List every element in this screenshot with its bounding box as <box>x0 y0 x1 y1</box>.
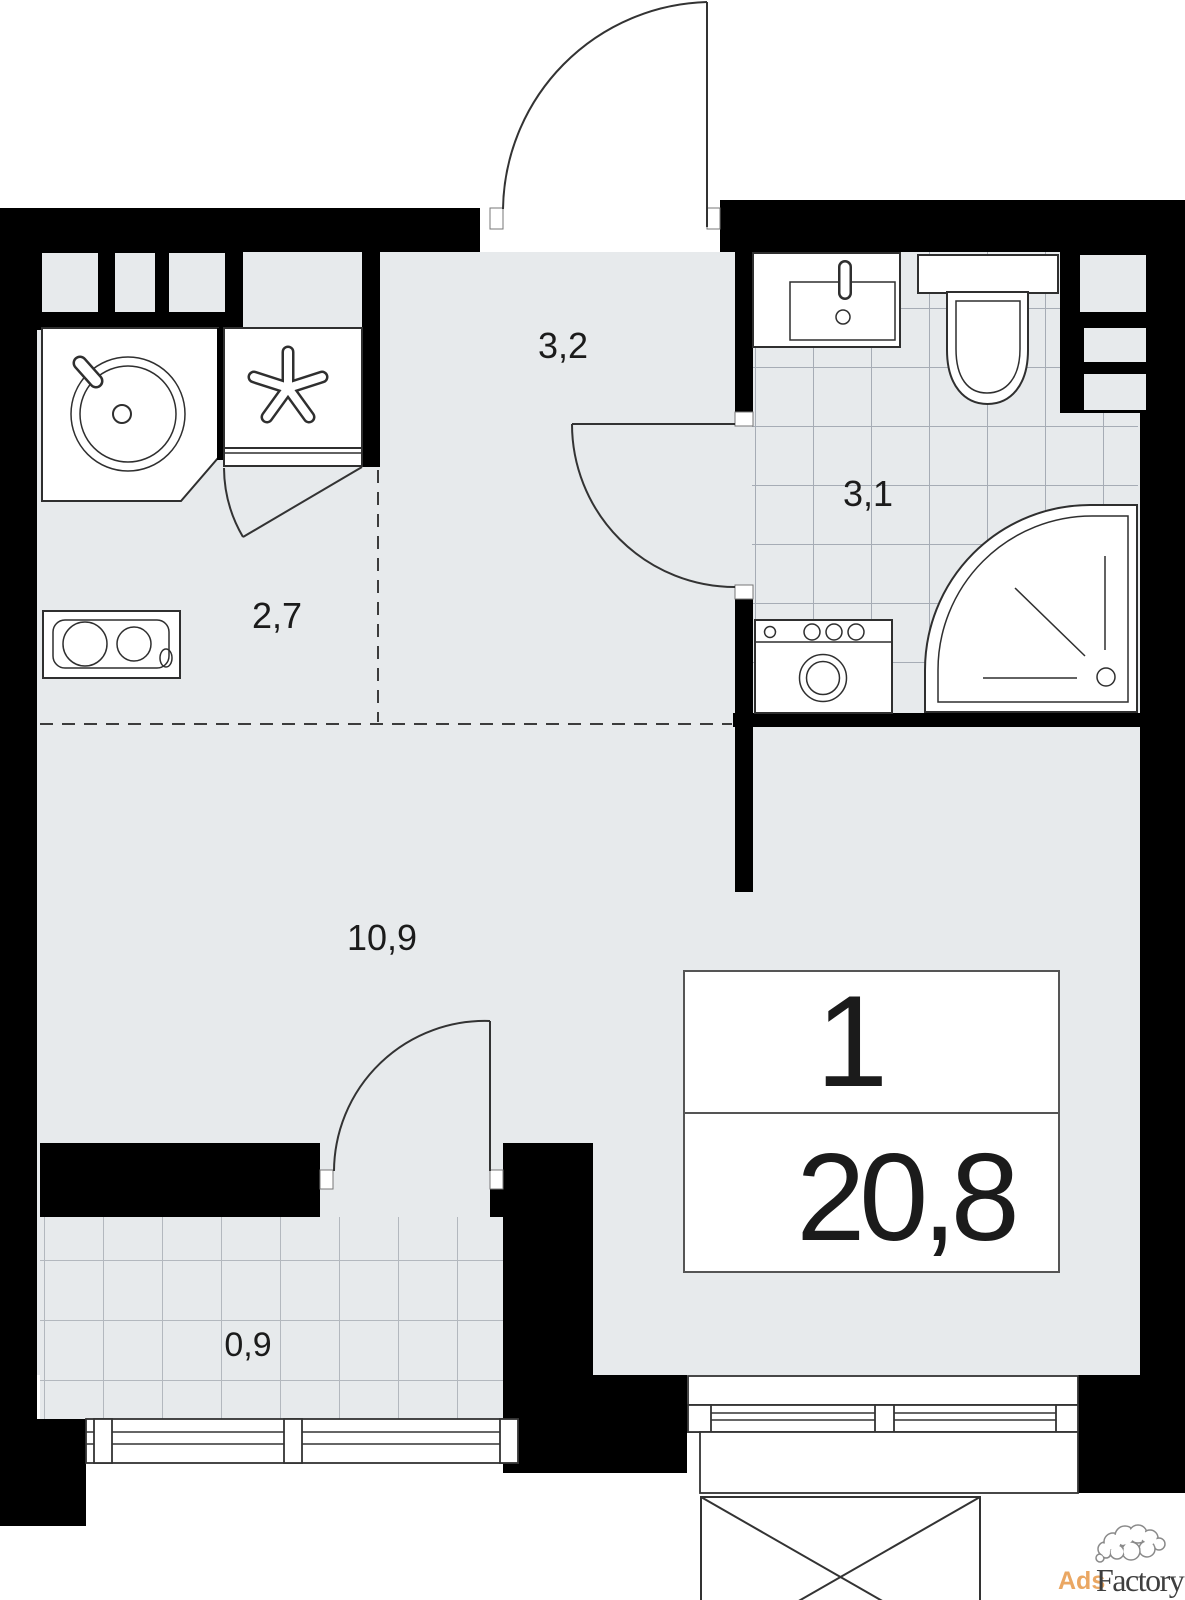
entrance-jamb-left <box>490 208 503 229</box>
wall-balcony-band <box>40 1143 320 1217</box>
wall-bathroom-upper <box>735 252 753 412</box>
bathroom-jamb-top <box>735 412 753 426</box>
wall-left <box>0 208 37 1526</box>
balcony-jamb-left <box>320 1170 333 1189</box>
balcony-area-label: 0,9 <box>224 1326 271 1364</box>
floor-plan-svg: 3,2 3,1 2,7 10,9 0,9 1 20,8 <box>0 0 1185 1600</box>
stove <box>43 611 180 678</box>
unit-rooms-count: 1 <box>816 968 888 1114</box>
window-outer-sill <box>700 1432 1078 1493</box>
balcony-jamb-right <box>490 1170 503 1189</box>
wall-bottom-left-foot <box>0 1419 86 1526</box>
window-niche-1 <box>42 253 98 312</box>
lower-balcony-outline <box>701 1497 980 1600</box>
wall-balcony-column-foot <box>593 1375 687 1473</box>
bathroom-area-label: 3,1 <box>843 473 893 514</box>
wall-below-bathroom <box>733 713 1140 727</box>
closet-front-band <box>224 448 362 466</box>
bathroom-sink-counter <box>753 253 900 347</box>
wall-kitchen-partition <box>362 252 380 467</box>
wall-top-left <box>0 208 480 252</box>
window-niche-2 <box>115 253 155 312</box>
bathroom-sink <box>753 253 900 347</box>
balcony-window <box>86 1419 518 1463</box>
balcony-tile-grid <box>40 1217 518 1419</box>
unit-total-area: 20,8 <box>796 1129 1014 1267</box>
window-niche-3 <box>169 253 225 312</box>
vent-shaft-niche-3 <box>1084 374 1146 410</box>
hallway-area-label: 3,2 <box>538 325 588 366</box>
entrance-opening <box>503 200 707 252</box>
floor-plan-page: 3,2 3,1 2,7 10,9 0,9 1 20,8 <box>0 0 1185 1600</box>
living-room-area-label: 10,9 <box>347 917 417 958</box>
vent-shaft-niche-1 <box>1080 255 1146 312</box>
wall-bathroom-stub <box>735 599 753 892</box>
washing-machine <box>755 620 892 713</box>
bathroom-jamb-bottom <box>735 585 753 599</box>
kitchen-sink-drain <box>113 405 131 423</box>
kitchen-area-label: 2,7 <box>252 595 302 636</box>
wall-balcony-jamb-chunk <box>490 1188 503 1217</box>
closet-niche <box>243 252 362 328</box>
watermark-suffix: Factory <box>1096 1562 1185 1598</box>
toilet-bowl <box>947 292 1028 404</box>
entrance-jamb-right <box>707 208 720 229</box>
wall-bottom-right <box>1078 1375 1185 1493</box>
toilet-tank <box>918 255 1058 293</box>
unit-info-box: 1 20,8 <box>684 968 1059 1272</box>
vent-shaft-niche-2 <box>1084 328 1146 362</box>
living-room-window <box>688 1376 1078 1493</box>
